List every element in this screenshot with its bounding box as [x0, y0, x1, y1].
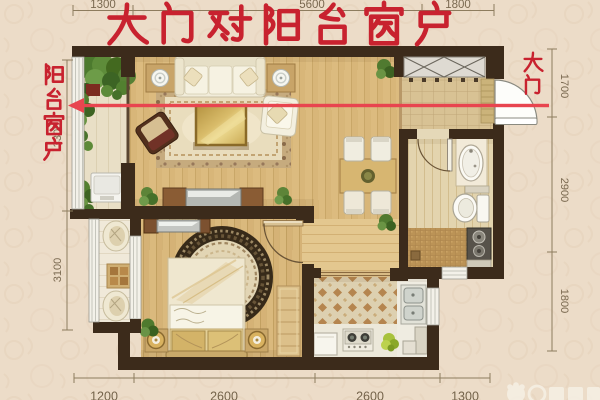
svg-text:1200: 1200: [90, 390, 118, 400]
svg-text:5600: 5600: [299, 0, 325, 11]
svg-text:2600: 2600: [356, 390, 384, 400]
svg-text:1700: 1700: [558, 74, 570, 98]
svg-text:2600: 2600: [210, 390, 238, 400]
svg-text:1300: 1300: [451, 390, 479, 400]
svg-text:3100: 3100: [52, 258, 64, 282]
svg-text:1300: 1300: [90, 0, 116, 11]
svg-text:1800: 1800: [445, 0, 471, 11]
svg-text:1800: 1800: [558, 289, 570, 313]
svg-text:2900: 2900: [558, 178, 570, 202]
